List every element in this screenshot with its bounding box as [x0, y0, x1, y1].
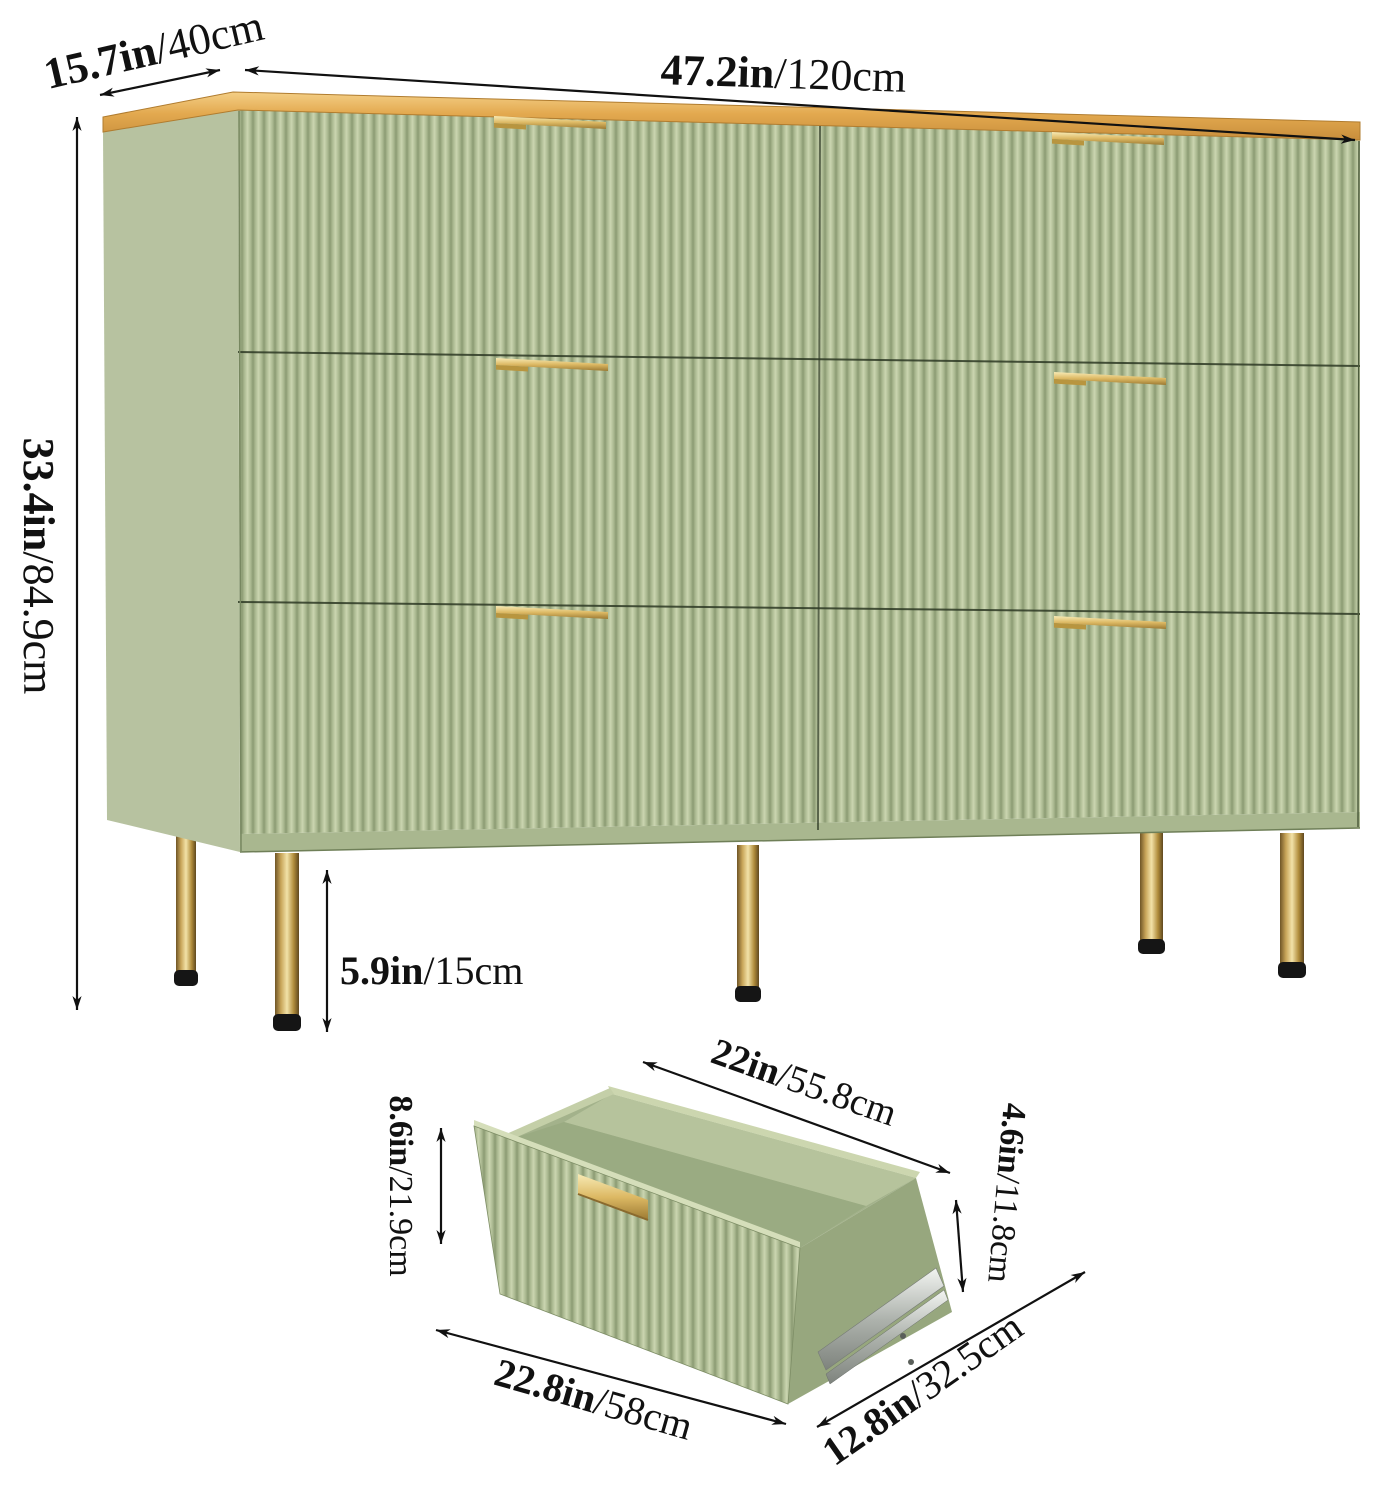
dresser-figure: [103, 92, 1360, 1031]
dimension-label-height: 33.4in/84.9cm: [14, 438, 63, 695]
dresser-leg-front-left: [273, 853, 301, 1031]
dresser-side-panel: [103, 110, 240, 852]
depth-cm: /40cm: [150, 1, 268, 73]
depth-inches: 15.7in: [39, 26, 161, 99]
height-cm: /84.9cm: [14, 551, 63, 694]
drawer-top-width-cm: /55.8cm: [772, 1054, 902, 1135]
dimension-label-drawer-front-height: 8.6in/21.9cm: [382, 1095, 419, 1276]
dimension-label-leg-height: 5.9in/15cm: [340, 948, 523, 993]
drawer-front-height-inches: 8.6in: [382, 1095, 419, 1166]
dresser-leg-front-right: [1278, 833, 1306, 978]
dresser-front-fluted: [238, 110, 1360, 834]
dimension-depth: 15.7in/40cm: [39, 1, 268, 99]
leg-height-cm: /15cm: [423, 948, 523, 993]
dimension-leg-height: 5.9in/15cm: [327, 870, 523, 1032]
dresser-leg-back-left: [174, 820, 198, 986]
dimension-label-width: 47.2in/120cm: [660, 45, 907, 102]
dimension-label-drawer-inner-height: 4.6in/11.8cm: [980, 1102, 1033, 1285]
drawer-inner-height-inches: 4.6in: [990, 1102, 1033, 1176]
height-inches: 33.4in: [14, 438, 63, 552]
drawer-top-width-inches: 22in: [706, 1031, 786, 1094]
rail-screw-2: [908, 1359, 914, 1365]
dresser-leg-front-center: [735, 845, 761, 1002]
dresser-leg-back-right: [1138, 833, 1165, 954]
dimension-drawer-inner-height: 4.6in/11.8cm: [956, 1102, 1033, 1292]
dimension-arrow-drawer-inner-height: [956, 1200, 963, 1292]
dimension-label-drawer-front-width: 22.8in/58cm: [490, 1349, 698, 1448]
drawer-detail-figure: [474, 1086, 952, 1404]
leg-height-inches: 5.9in: [340, 948, 423, 993]
drawer-inner-height-cm: /11.8cm: [980, 1172, 1026, 1284]
drawer-front-width-cm: /58cm: [589, 1378, 698, 1449]
drawer-front-height-cm: /21.9cm: [382, 1166, 419, 1276]
rail-screw-1: [900, 1333, 906, 1339]
product-dimension-diagram: 15.7in/40cm 47.2in/120cm 33.4in/84.9cm 5…: [0, 0, 1384, 1500]
width-cm: /120cm: [774, 49, 907, 102]
width-inches: 47.2in: [660, 45, 775, 98]
dimension-drawer-front-height: 8.6in/21.9cm: [382, 1095, 441, 1276]
dresser-right-edge: [1358, 141, 1359, 827]
dimension-height: 33.4in/84.9cm: [14, 117, 77, 1010]
